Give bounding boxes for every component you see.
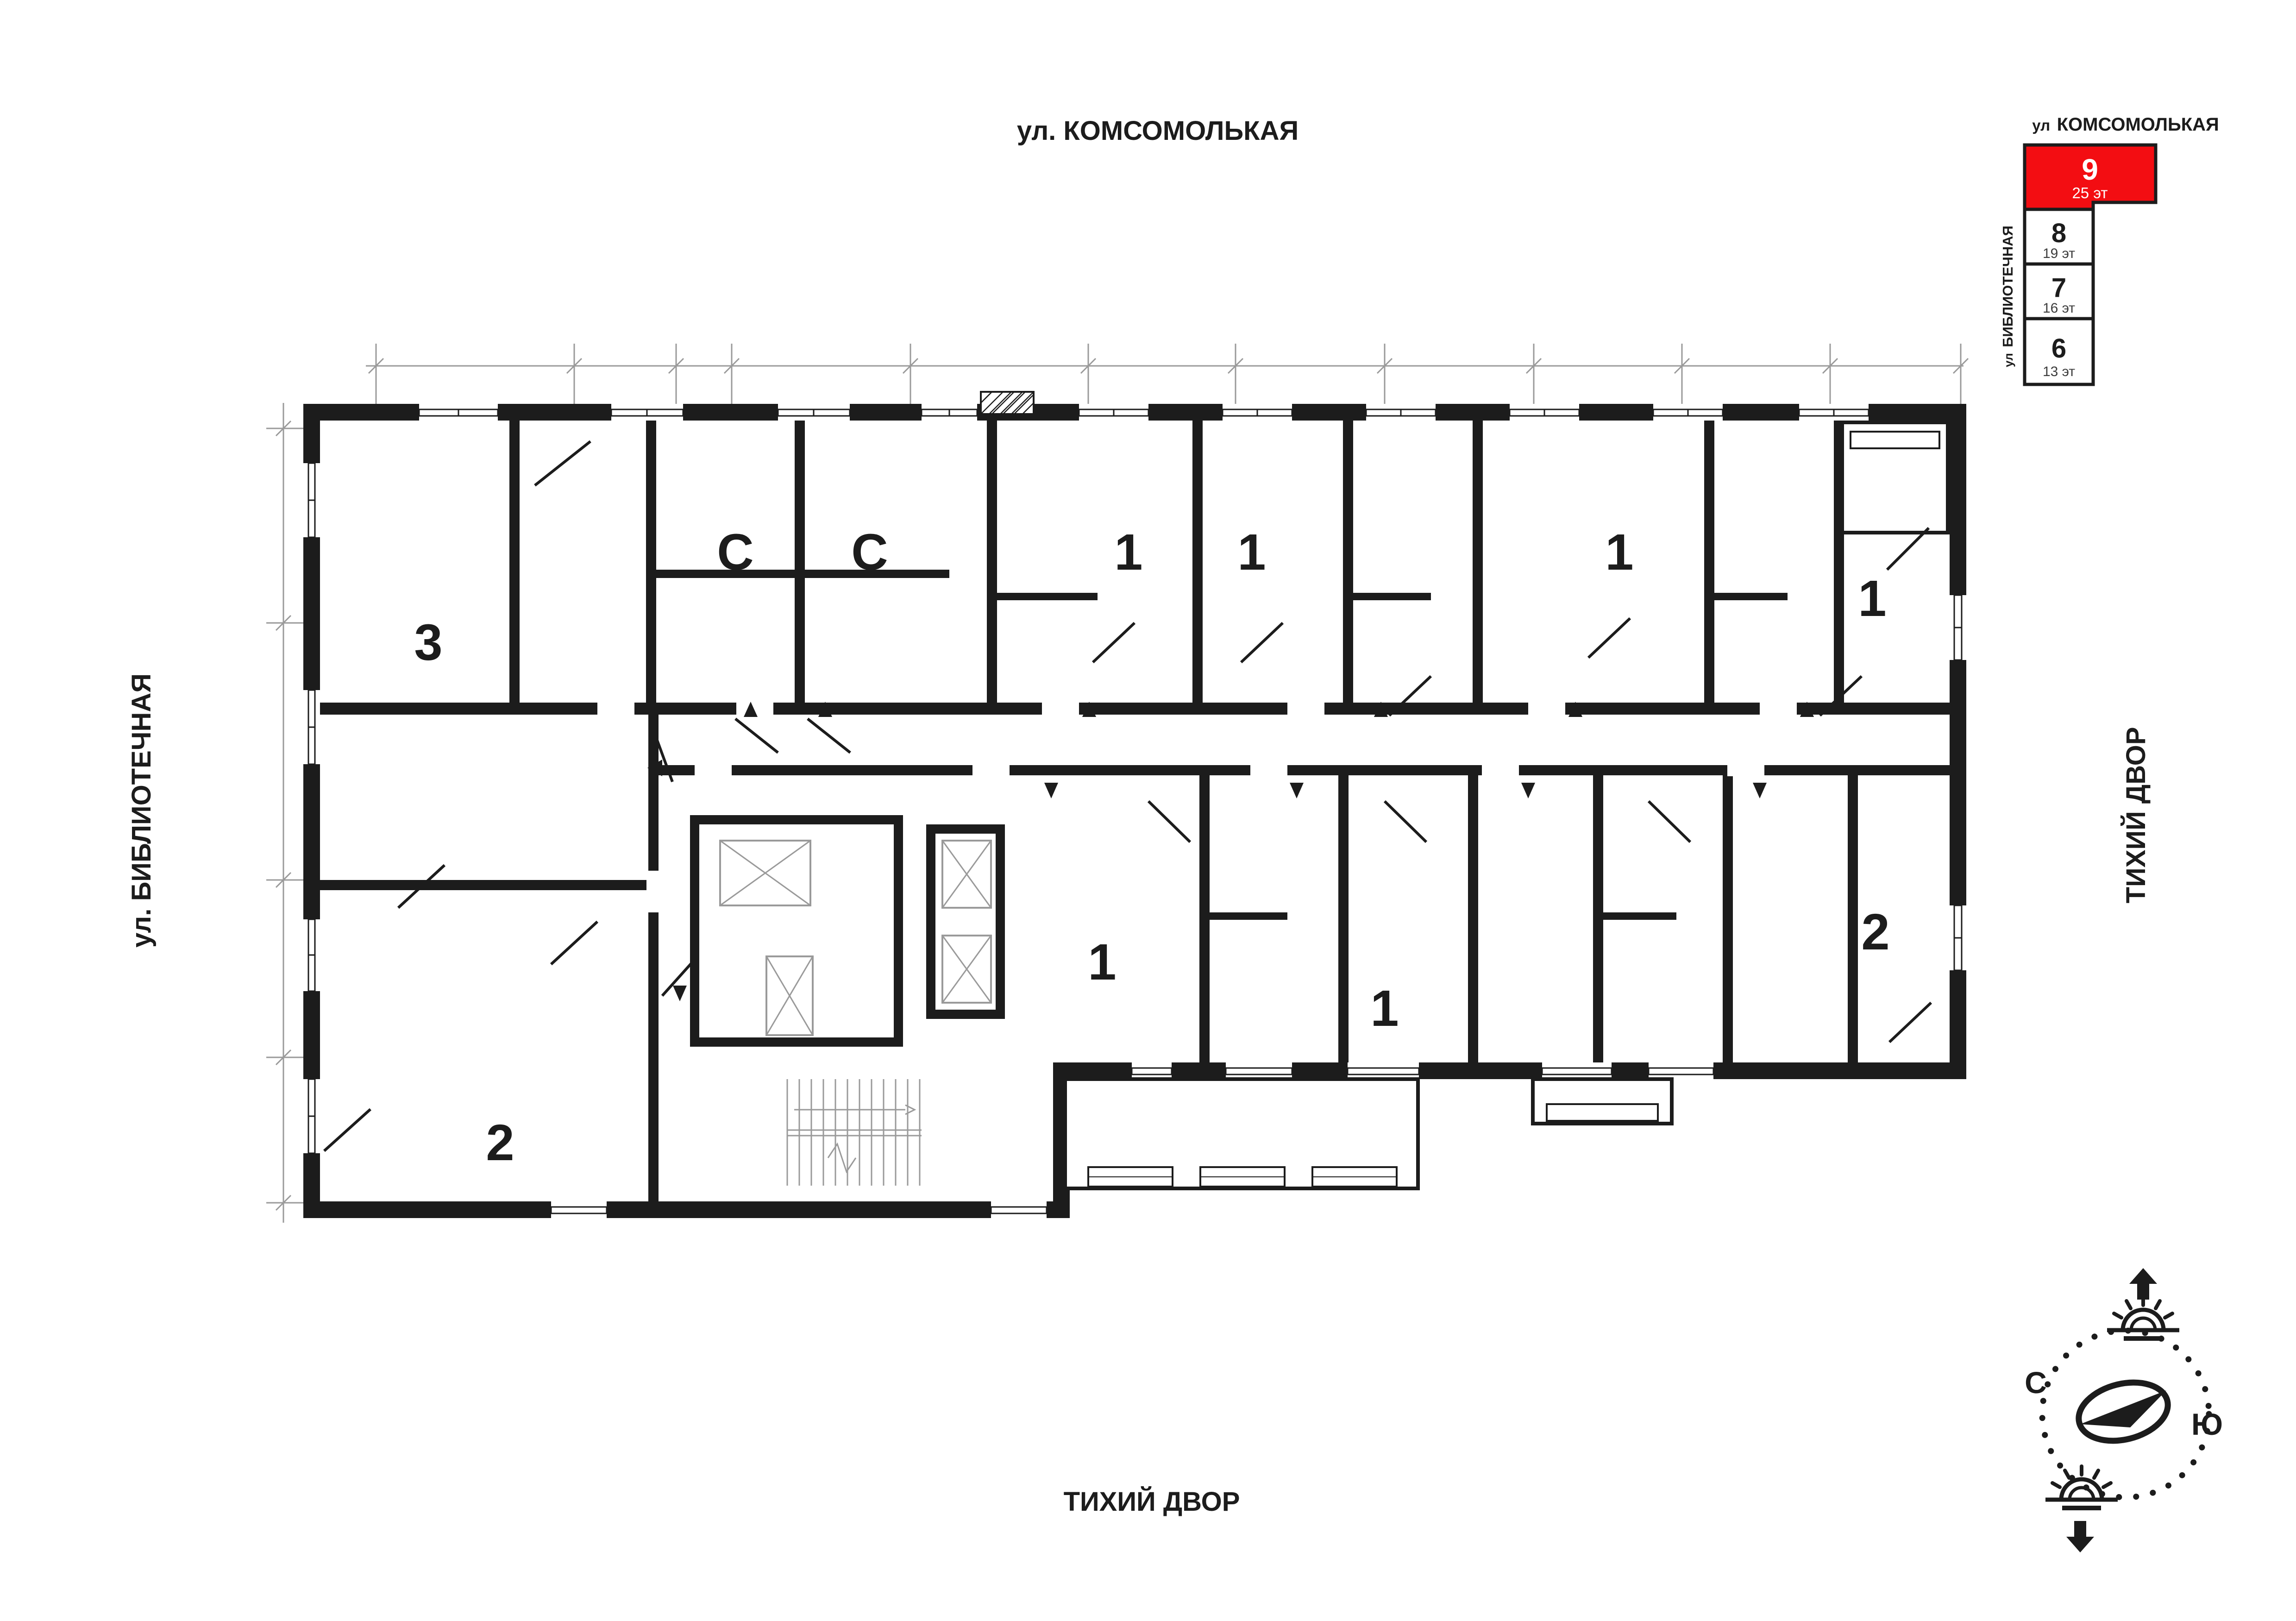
minimap-street-left: ул БИБЛИОТЕЧНАЯ [2000,226,2016,367]
street-label-left: ул. БИБЛИОТЕЧНАЯ [126,673,157,948]
street-label-bottom: ТИХИЙ ДВОР [1064,1487,1240,1517]
street-label-right: ТИХИЙ ДВОР [2121,727,2151,904]
staircase-icon [787,1079,922,1186]
minimap-block-8[interactable]: 8 19 эт [2025,209,2093,264]
apartment-label[interactable]: 1 [1088,934,1116,991]
apartment-label[interactable]: 2 [486,1114,514,1171]
minimap-block-6[interactable]: 6 13 эт [2025,319,2093,384]
apartment-label[interactable]: 3 [414,614,442,671]
minimap-block-floors: 16 эт [2043,301,2075,316]
apartment-label[interactable]: 1 [1858,570,1886,627]
apartment-label[interactable]: 1 [1370,980,1399,1037]
apartment-label[interactable]: 1 [1605,524,1633,581]
compass-south-label: Ю [2191,1407,2223,1441]
minimap-block-number: 9 [2082,153,2098,186]
sunset-icon [2045,1466,2118,1508]
minimap-block-9[interactable]: 9 25 эт [2025,145,2156,209]
apartment-label[interactable]: С [851,524,888,581]
minimap: ул КОМСОМОЛЬКАЯ ул БИБЛИОТЕЧНАЯ 9 25 эт … [2000,114,2219,384]
core [695,820,1000,1186]
minimap-block-number: 7 [2051,273,2066,303]
minimap-block-number: 8 [2051,218,2066,248]
street-label-top: ул. КОМСОМОЛЬКАЯ [1017,116,1299,146]
apartment-label[interactable]: 1 [1114,524,1142,581]
south-arrow-icon [2066,1521,2094,1552]
compass-north-label: С [2025,1365,2047,1400]
minimap-block-7[interactable]: 7 16 эт [2025,264,2093,319]
apartment-label[interactable]: С [717,524,753,581]
apartment-label[interactable]: 1 [1237,524,1266,581]
minimap-block-floors: 13 эт [2043,364,2075,379]
street-labels: ул. КОМСОМОЛЬКАЯ ТИХИЙ ДВОР ул. БИБЛИОТЕ… [126,116,2151,1517]
compass: С Ю [2025,1268,2223,1552]
minimap-block-number: 6 [2051,333,2066,364]
door-triangles [647,702,1814,1001]
north-arrow-icon [2129,1268,2157,1300]
hatched-shaft [981,392,1034,414]
sunrise-icon [2107,1297,2179,1338]
minimap-block-floors: 25 эт [2072,184,2108,201]
apartment-label[interactable]: 2 [1861,904,1889,961]
floor-plan-page: 3 С С 1 1 1 1 2 1 1 2 ул. КОМСОМОЛЬКАЯ Т… [0,0,2296,1621]
minimap-street-top: ул КОМСОМОЛЬКАЯ [2032,114,2219,135]
minimap-block-floors: 19 эт [2043,246,2075,261]
elevator-icon [720,841,991,1035]
